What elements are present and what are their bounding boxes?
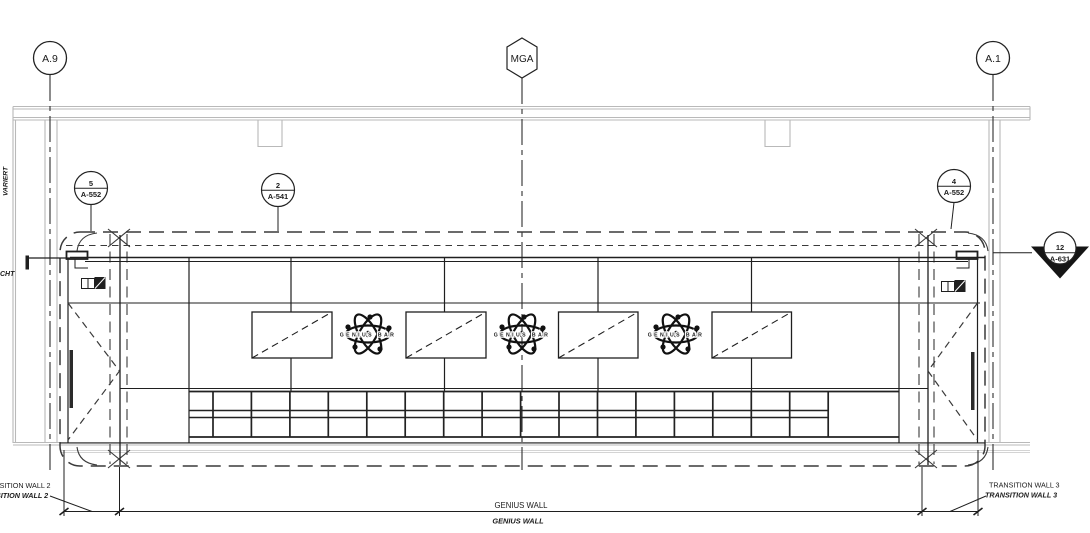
label-transition-wall-3: TRANSITION WALL 3 (989, 481, 1060, 490)
counter-grid (189, 391, 899, 437)
genius-bar-logo-text: GENIUS BAR (340, 333, 397, 339)
leader-transition-wall-2 (50, 496, 92, 512)
structural-grid-lines (50, 75, 993, 475)
genius-bar-logo-2: GENIUS BAR (494, 311, 551, 358)
label-genius-wall: GENIUS WALL (494, 501, 548, 510)
display-panel-1 (252, 312, 332, 358)
callout-sheet: A-541 (268, 192, 288, 201)
cabinet-door-symbol (928, 303, 978, 440)
right-cabinet (928, 281, 978, 441)
grid-marker-label: A.9 (42, 53, 58, 65)
section-number: 12 (1056, 243, 1064, 252)
genius-wall-plan-drawing: GENIUS BAR GENIUS BAR GENIUS BAR 5 A-552… (0, 0, 1090, 533)
floor-lines (60, 451, 1030, 453)
detail-callout-2-a541: 2 A-541 (262, 174, 295, 232)
wall-notch-right (765, 120, 790, 147)
outlet-symbol (82, 278, 106, 289)
label-edge-vertical: VARIERT (3, 166, 10, 196)
label-transition-wall-3-italic: TRANSITION WALL 3 (985, 491, 1057, 500)
callout-number: 2 (276, 181, 280, 190)
callout-sheet: A-552 (81, 190, 101, 199)
genius-bar-logo-text: GENIUS BAR (648, 333, 705, 339)
display-panel-3 (559, 312, 639, 358)
cabinet-handle (70, 350, 74, 408)
annotations: TRANSITION WALL 2 TRANSITION WALL 2 GENI… (0, 166, 1060, 526)
label-edge-fragment: CHT (0, 271, 15, 278)
grid-marker-a1: A.1 (977, 42, 1010, 75)
genius-wall-dashed-boundary (60, 229, 988, 468)
label-transition-wall-2: TRANSITION WALL 2 (0, 481, 51, 490)
grid-marker-a9: A.9 (34, 42, 67, 75)
section-marker-12-a631: 12 A-631 (1031, 232, 1089, 279)
outlet-symbol (942, 281, 966, 292)
corner-swing-arc-bl (77, 447, 97, 465)
grid-marker-label: A.1 (985, 53, 1001, 65)
grid-marker-label: MGA (511, 54, 534, 65)
genius-bar-logo-3: GENIUS BAR (648, 311, 705, 358)
corner-swing-arc-tl (77, 233, 97, 251)
cabinet-door-symbol (68, 303, 120, 440)
genius-bar-logo-1: GENIUS BAR (340, 311, 397, 358)
wall-linework (26, 235, 1033, 465)
display-panel-2 (406, 312, 486, 358)
callout-sheet: A-552 (944, 188, 964, 197)
callout-number: 5 (89, 179, 93, 188)
cabinet-handle (971, 352, 975, 410)
floor-plan-sheet: GENIUS BAR GENIUS BAR GENIUS BAR 5 A-552… (0, 0, 1090, 533)
label-genius-wall-italic: GENIUS WALL (492, 517, 544, 526)
detail-callout-4-a552: 4 A-552 (938, 170, 971, 230)
section-sheet: A-631 (1050, 255, 1070, 264)
genius-bar-logo-text: GENIUS BAR (494, 333, 551, 339)
label-transition-wall-2-italic: TRANSITION WALL 2 (0, 491, 48, 500)
display-panel-4 (712, 312, 792, 358)
corner-swing-arc-tr (968, 233, 988, 251)
left-cabinet (68, 278, 120, 441)
grid-marker-mga: MGA (507, 38, 537, 78)
detail-callout-5-a552: 5 A-552 (75, 172, 108, 232)
wall-notch-left (258, 120, 282, 147)
